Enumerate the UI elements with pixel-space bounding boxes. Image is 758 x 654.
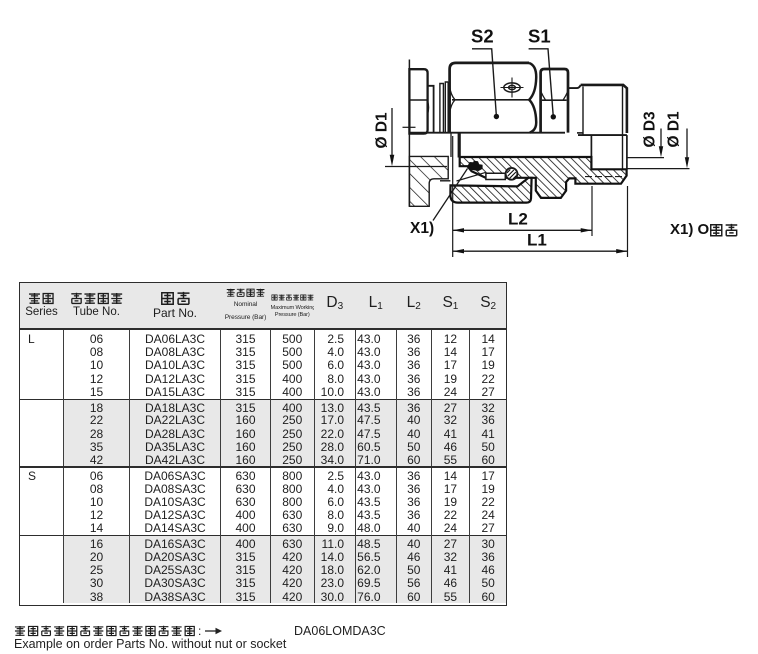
svg-text:S1: S1 <box>528 26 551 47</box>
svg-text:S2: S2 <box>471 26 494 47</box>
svg-text:L2: L2 <box>508 210 528 229</box>
svg-text:Ø D1: Ø D1 <box>666 111 683 148</box>
svg-text:L1: L1 <box>527 231 547 250</box>
svg-text:Ø D1: Ø D1 <box>374 112 391 149</box>
svg-text:X1): X1) <box>410 220 434 237</box>
svg-text:Ø D3: Ø D3 <box>642 111 659 148</box>
